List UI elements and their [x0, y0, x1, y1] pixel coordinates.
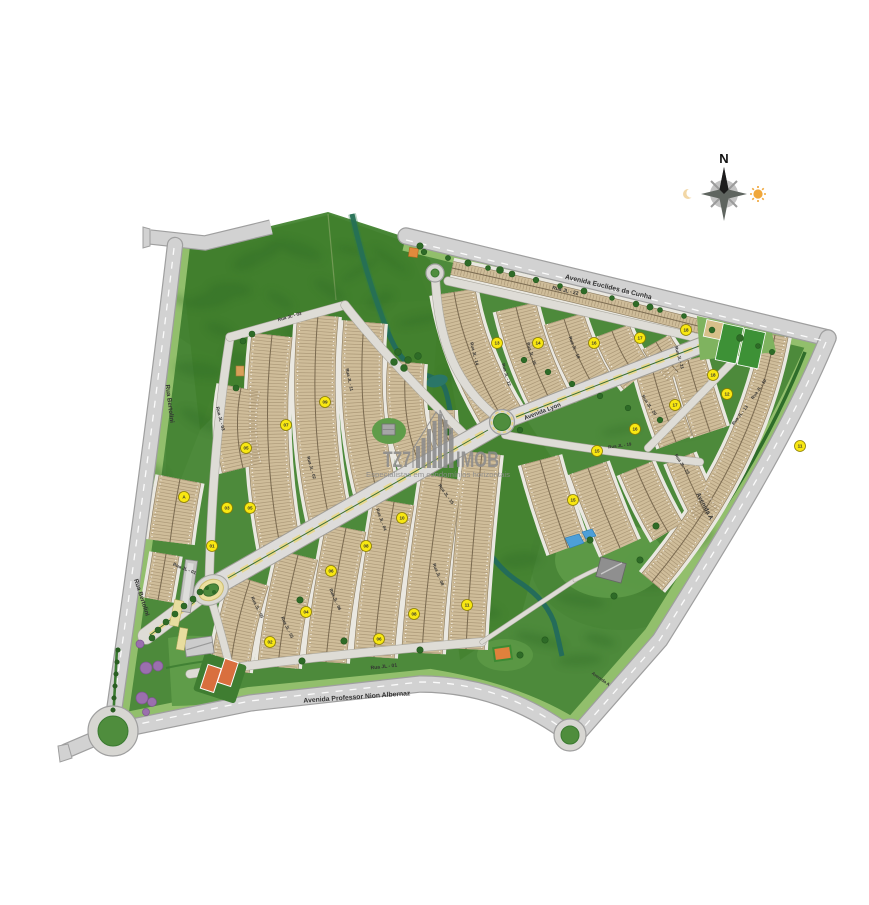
- svg-text:10: 10: [399, 516, 405, 521]
- svg-text:IMOB: IMOB: [456, 447, 499, 472]
- svg-text:06: 06: [328, 569, 334, 574]
- svg-text:07: 07: [283, 423, 289, 428]
- svg-text:02: 02: [267, 640, 273, 645]
- svg-text:11: 11: [798, 444, 803, 449]
- svg-text:01: 01: [209, 544, 215, 549]
- svg-text:13: 13: [494, 341, 500, 346]
- svg-text:18: 18: [683, 328, 689, 333]
- svg-text:08: 08: [363, 544, 369, 549]
- svg-text:16: 16: [591, 341, 597, 346]
- svg-text:17: 17: [672, 403, 678, 408]
- svg-text:N: N: [719, 151, 728, 166]
- svg-text:11: 11: [465, 603, 470, 608]
- svg-text:12: 12: [724, 392, 730, 397]
- svg-text:08: 08: [411, 612, 417, 617]
- svg-text:04: 04: [303, 610, 309, 615]
- svg-text:05: 05: [243, 446, 249, 451]
- svg-text:05: 05: [247, 506, 253, 511]
- svg-text:06: 06: [376, 637, 382, 642]
- svg-text:16: 16: [632, 427, 638, 432]
- svg-text:17: 17: [637, 336, 643, 341]
- svg-text:Especialistas em condomínios h: Especialistas em condomínios horizontais: [366, 470, 510, 479]
- svg-text:03: 03: [224, 506, 230, 511]
- svg-text:15: 15: [594, 449, 600, 454]
- svg-text:14: 14: [535, 341, 541, 346]
- svg-text:15: 15: [570, 498, 576, 503]
- svg-text:09: 09: [322, 400, 328, 405]
- svg-text:TZ7: TZ7: [383, 447, 411, 472]
- svg-text:18: 18: [710, 373, 716, 378]
